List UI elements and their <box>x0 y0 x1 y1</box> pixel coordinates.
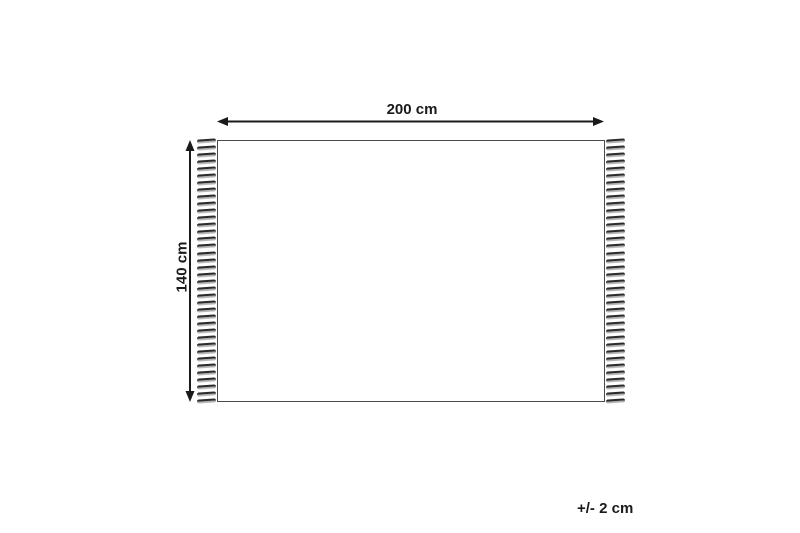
fringe-tassel <box>606 173 625 178</box>
fringe-tassel <box>606 202 625 207</box>
fringe-tassel <box>606 223 625 228</box>
tolerance-label: +/- 2 cm <box>577 500 633 517</box>
fringe-tassel <box>197 286 216 291</box>
fringe-tassel <box>197 328 216 333</box>
fringe-tassel <box>197 244 216 249</box>
fringe-tassel <box>197 265 216 270</box>
fringe-tassel <box>197 293 216 298</box>
width-dimension-label: 200 cm <box>387 102 438 117</box>
fringe-tassel <box>197 166 216 171</box>
fringe-tassel <box>197 152 216 157</box>
rug-fringe-left <box>197 139 217 403</box>
fringe-tassel <box>606 286 625 291</box>
fringe-tassel <box>197 216 216 221</box>
fringe-tassel <box>197 258 216 263</box>
fringe-tassel <box>197 314 216 319</box>
fringe-tassel <box>606 258 625 263</box>
fringe-tassel <box>606 377 625 382</box>
fringe-tassel <box>197 363 216 368</box>
fringe-tassel <box>606 230 625 235</box>
fringe-tassel <box>606 237 625 242</box>
fringe-tassel <box>197 173 216 178</box>
rug-dimension-diagram: 200 cm 140 cm +/- 2 cm <box>0 0 800 533</box>
fringe-tassel <box>606 293 625 298</box>
fringe-tassel <box>197 202 216 207</box>
fringe-tassel <box>606 342 625 347</box>
fringe-tassel <box>197 138 216 143</box>
fringe-tassel <box>197 356 216 361</box>
fringe-tassel <box>606 384 625 389</box>
fringe-tassel <box>606 188 625 193</box>
fringe-tassel <box>606 272 625 277</box>
fringe-tassel <box>606 391 625 396</box>
fringe-tassel <box>606 145 625 150</box>
fringe-tassel <box>197 195 216 200</box>
fringe-tassel <box>197 181 216 186</box>
fringe-tassel <box>197 391 216 396</box>
fringe-tassel <box>197 342 216 347</box>
fringe-tassel <box>606 166 625 171</box>
height-dimension-label: 140 cm <box>175 242 190 293</box>
fringe-tassel <box>197 370 216 375</box>
fringe-tassel <box>197 230 216 235</box>
fringe-tassel <box>197 377 216 382</box>
fringe-tassel <box>197 300 216 305</box>
fringe-tassel <box>197 279 216 284</box>
rug-outline <box>217 140 605 402</box>
fringe-tassel <box>606 363 625 368</box>
fringe-tassel <box>606 314 625 319</box>
fringe-tassel <box>197 307 216 312</box>
fringe-tassel <box>606 398 625 403</box>
fringe-tassel <box>197 237 216 242</box>
fringe-tassel <box>606 216 625 221</box>
fringe-tassel <box>197 223 216 228</box>
fringe-tassel <box>606 328 625 333</box>
fringe-tassel <box>606 300 625 305</box>
fringe-tassel <box>606 159 625 164</box>
width-dimension-arrow <box>217 117 604 126</box>
fringe-tassel <box>197 188 216 193</box>
fringe-tassel <box>197 321 216 326</box>
fringe-tassel <box>197 335 216 340</box>
fringe-tassel <box>606 181 625 186</box>
fringe-tassel <box>606 321 625 326</box>
fringe-tassel <box>197 398 216 403</box>
fringe-tassel <box>606 370 625 375</box>
fringe-tassel <box>197 251 216 256</box>
fringe-tassel <box>197 349 216 354</box>
fringe-tassel <box>606 335 625 340</box>
fringe-tassel <box>606 138 625 143</box>
fringe-tassel <box>606 265 625 270</box>
fringe-tassel <box>606 152 625 157</box>
fringe-tassel <box>197 209 216 214</box>
fringe-tassel <box>606 356 625 361</box>
fringe-tassel <box>606 307 625 312</box>
fringe-tassel <box>197 159 216 164</box>
fringe-tassel <box>197 272 216 277</box>
fringe-tassel <box>606 209 625 214</box>
fringe-tassel <box>606 279 625 284</box>
rug-fringe-right <box>605 139 625 403</box>
fringe-tassel <box>606 251 625 256</box>
fringe-tassel <box>197 384 216 389</box>
fringe-tassel <box>197 145 216 150</box>
fringe-tassel <box>606 349 625 354</box>
fringe-tassel <box>606 195 625 200</box>
fringe-tassel <box>606 244 625 249</box>
